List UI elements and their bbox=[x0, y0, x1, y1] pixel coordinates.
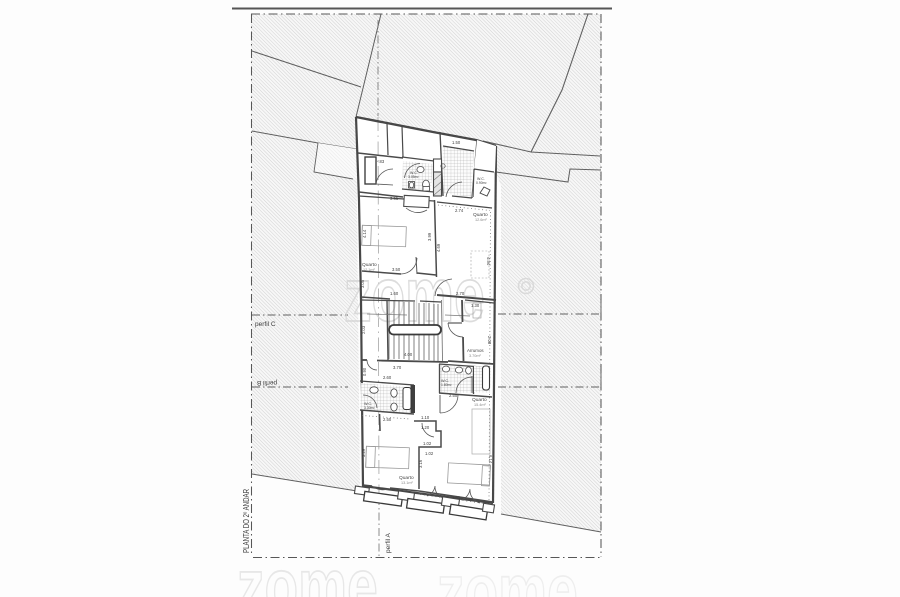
svg-text:perfil B: perfil B bbox=[257, 379, 277, 386]
svg-text:3.05m²: 3.05m² bbox=[408, 175, 419, 179]
svg-text:3.05: 3.05 bbox=[360, 279, 365, 288]
svg-text:2.50: 2.50 bbox=[449, 393, 458, 398]
svg-text:2.08: 2.08 bbox=[487, 336, 492, 345]
svg-text:15.4m²: 15.4m² bbox=[474, 403, 487, 407]
svg-text:zome: zome bbox=[237, 544, 378, 597]
svg-text:Arrumos: Arrumos bbox=[467, 348, 484, 353]
svg-text:6.14: 6.14 bbox=[488, 455, 493, 464]
svg-text:3.16: 3.16 bbox=[418, 459, 423, 468]
svg-text:3.30m²: 3.30m² bbox=[364, 406, 375, 410]
svg-text:0.90: 0.90 bbox=[362, 367, 367, 376]
svg-text:1.80m²: 1.80m² bbox=[441, 383, 452, 387]
svg-text:4.14: 4.14 bbox=[362, 229, 367, 238]
svg-text:0.90m²: 0.90m² bbox=[476, 181, 487, 185]
svg-text:3.70: 3.70 bbox=[393, 365, 402, 370]
svg-text:3.29: 3.29 bbox=[361, 448, 366, 457]
svg-text:1.02: 1.02 bbox=[425, 451, 434, 456]
svg-text:12.6m²: 12.6m² bbox=[475, 218, 488, 222]
svg-text:1.30: 1.30 bbox=[471, 303, 480, 308]
svg-text:3.99: 3.99 bbox=[427, 232, 432, 241]
svg-text:3.55: 3.55 bbox=[390, 196, 399, 201]
svg-text:2.03: 2.03 bbox=[361, 325, 366, 334]
svg-text:1.50: 1.50 bbox=[452, 140, 461, 145]
svg-text:4.69: 4.69 bbox=[436, 243, 441, 252]
svg-text:-.83: -.83 bbox=[377, 159, 385, 164]
svg-text:4.00: 4.00 bbox=[404, 352, 413, 357]
svg-text:zome: zome bbox=[437, 549, 578, 597]
svg-text:2.60: 2.60 bbox=[383, 375, 392, 380]
svg-text:perfil A: perfil A bbox=[385, 532, 392, 553]
svg-text:2.70: 2.70 bbox=[456, 291, 465, 296]
svg-text:1.60: 1.60 bbox=[390, 291, 399, 296]
svg-text:13.1m²: 13.1m² bbox=[401, 481, 414, 485]
svg-text:3.50: 3.50 bbox=[392, 267, 401, 272]
svg-text:4.54: 4.54 bbox=[486, 257, 491, 266]
svg-text:1.10: 1.10 bbox=[421, 415, 430, 420]
svg-text:perfil C: perfil C bbox=[255, 321, 276, 328]
svg-text:3.70m²: 3.70m² bbox=[469, 354, 482, 358]
svg-text:2.74: 2.74 bbox=[455, 208, 464, 213]
svg-text:1.02: 1.02 bbox=[423, 441, 432, 446]
